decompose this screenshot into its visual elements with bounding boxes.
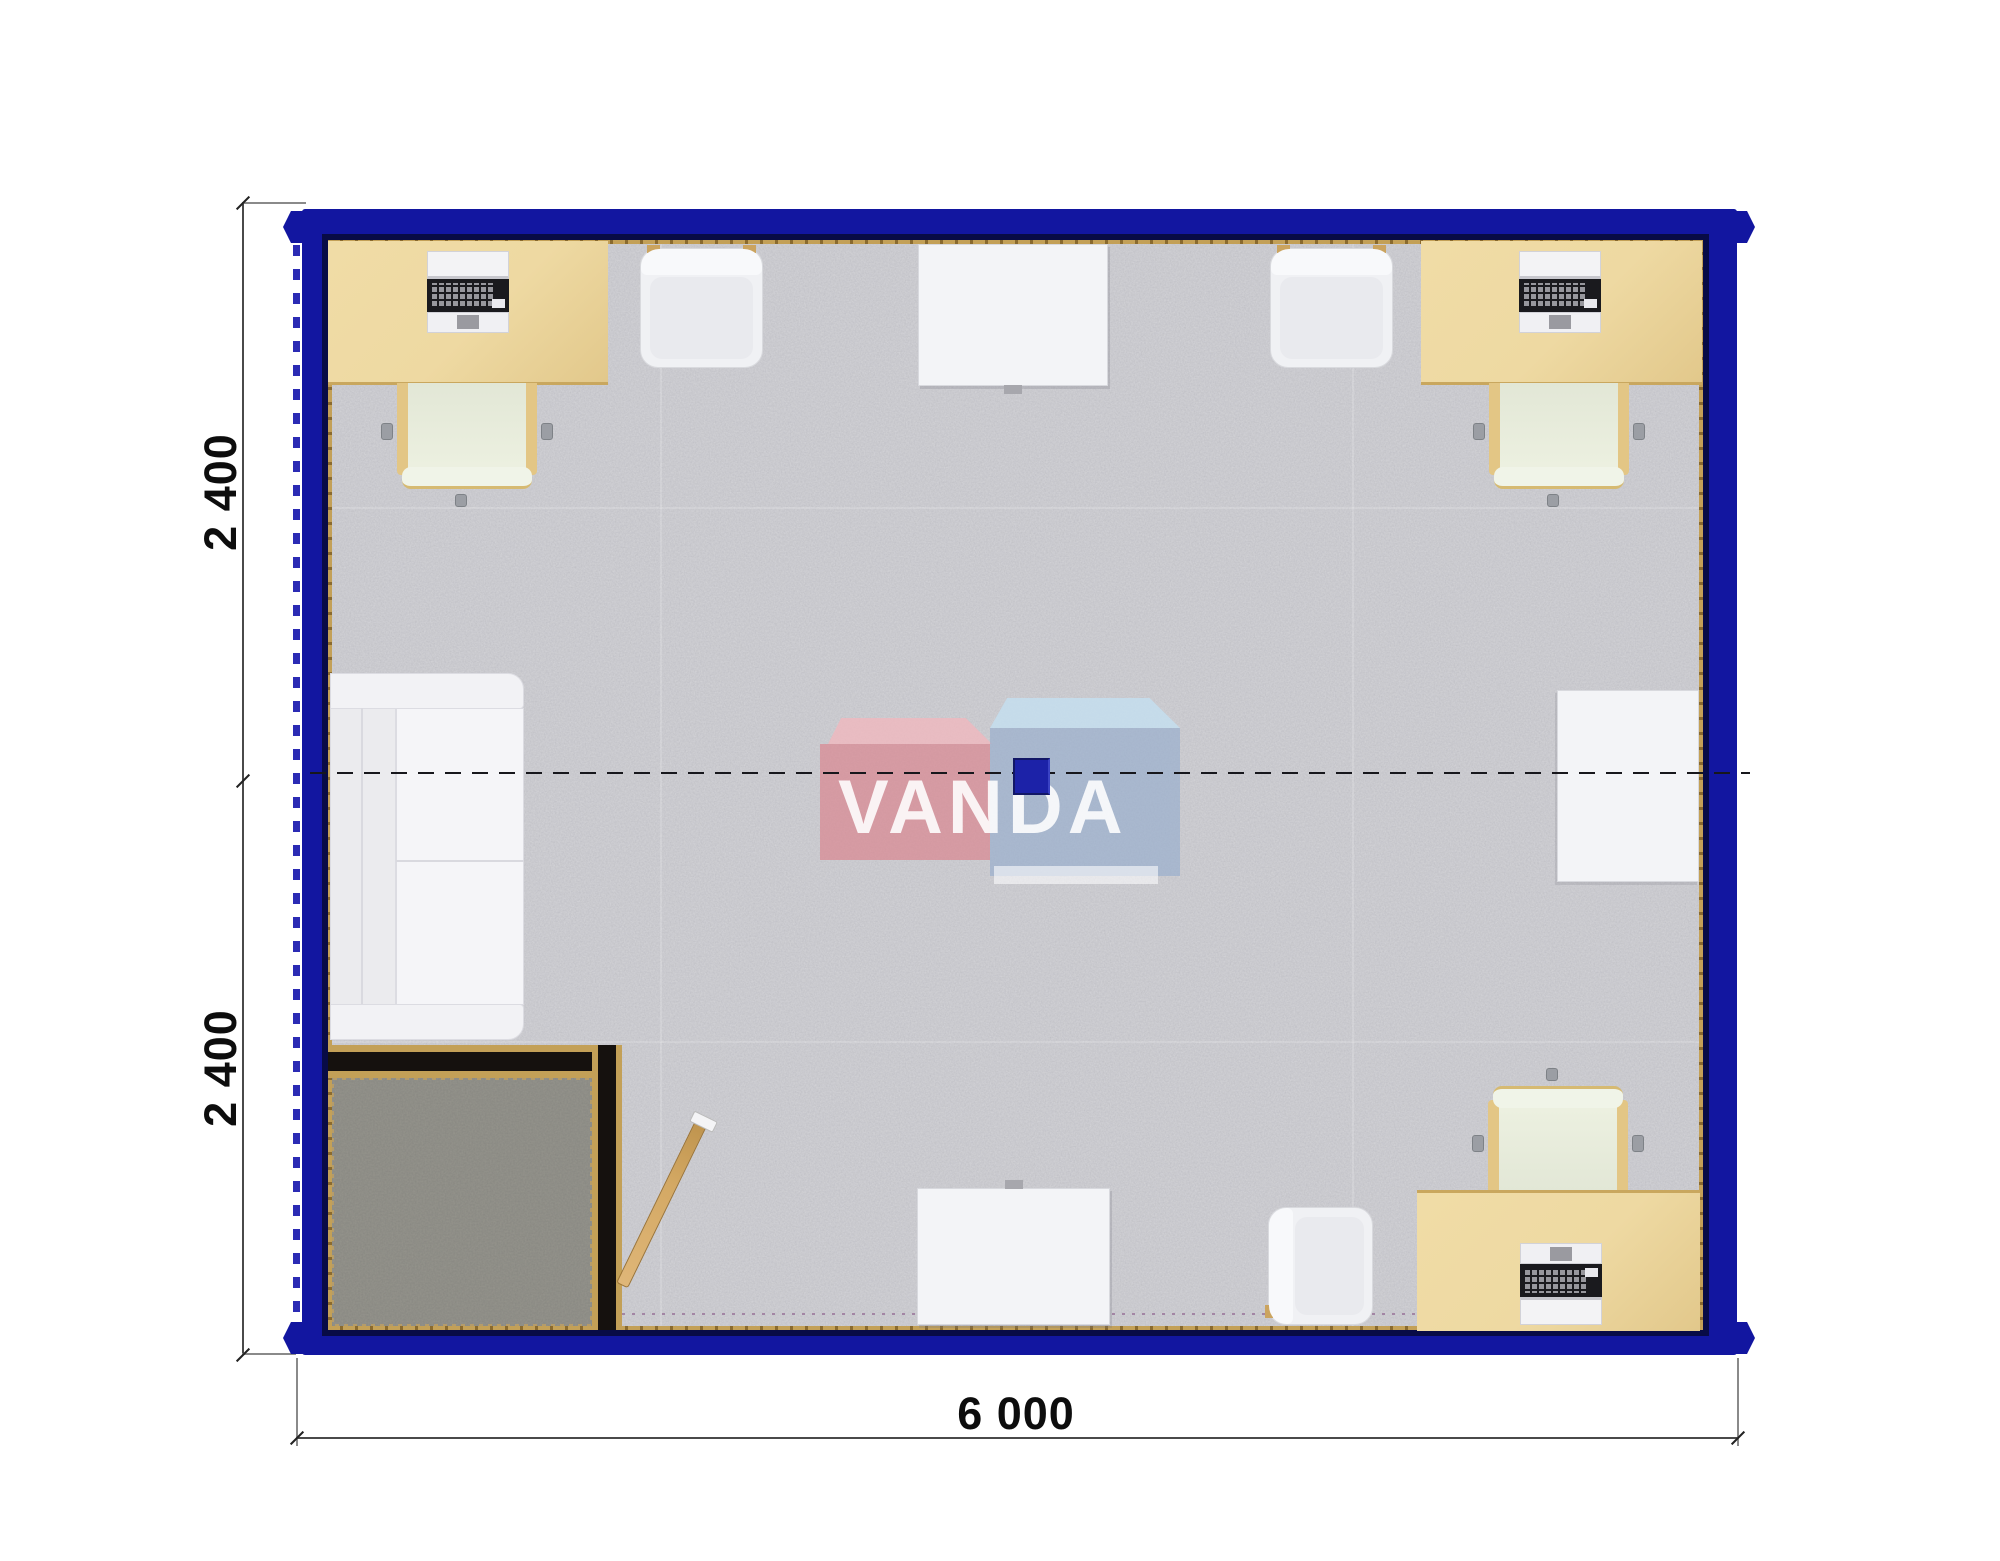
table-right-wall [1557,690,1699,882]
extension-line-left [296,1358,298,1446]
sofa-seat-seam [396,860,524,862]
table-bottom-center [917,1188,1110,1325]
structural-column [1013,758,1050,795]
partition-trim [616,1045,622,1330]
corner-casting-top-left [283,211,304,243]
task-chair-top-right [1489,383,1629,493]
corner-casting-bottom-right [1734,1322,1755,1354]
monitor [1519,251,1601,279]
extension-line-bottom [242,1353,296,1355]
monitor [427,251,509,279]
dimension-label-bottom: 6 000 [957,1388,1075,1440]
task-chair-top-left [397,383,537,493]
carpet-vestibule [332,1078,592,1326]
keyboard [1520,1264,1602,1297]
sofa-armrest-top [330,673,524,709]
computer-base [1520,1243,1602,1264]
computer-base [1519,312,1601,333]
mouse-pad [457,315,479,329]
partition-trim [328,1071,598,1078]
table-top-center [918,244,1108,386]
sofa-back-seam [361,708,363,1005]
left-wall-cladding-marks [293,245,300,1321]
partition-trim [328,1045,598,1052]
sofa-back [330,708,396,1005]
extension-line-right [1737,1358,1739,1446]
visitor-chair-top-right [1270,248,1393,368]
computer-base [427,312,509,333]
extension-line-top [242,202,306,204]
visitor-chair-top-left [640,248,763,368]
keyboard [1519,279,1601,312]
mouse-pad [1549,315,1571,329]
corner-casting-bottom-left [283,1322,304,1354]
partition-wall-horizontal [328,1052,598,1071]
corner-casting-top-right [1734,211,1755,243]
sofa-armrest-bottom [330,1004,524,1040]
dimension-label-left-bottom: 2 400 [195,1009,247,1127]
keyboard [427,279,509,312]
computer-top-left [427,251,509,333]
task-chair-bottom-right [1488,1082,1628,1192]
dimension-label-left-top: 2 400 [195,433,247,551]
floor-plan-canvas: 2 400 2 400 6 000 [0,0,2000,1561]
partition-wall-vertical [598,1045,616,1330]
sofa-seat [396,708,524,1005]
computer-bottom-right [1520,1243,1602,1325]
computer-top-right [1519,251,1601,333]
monitor [1520,1297,1602,1325]
visitor-chair-bottom [1268,1207,1373,1325]
wall-trim-right [1699,240,1703,1330]
mouse-pad [1550,1247,1572,1261]
